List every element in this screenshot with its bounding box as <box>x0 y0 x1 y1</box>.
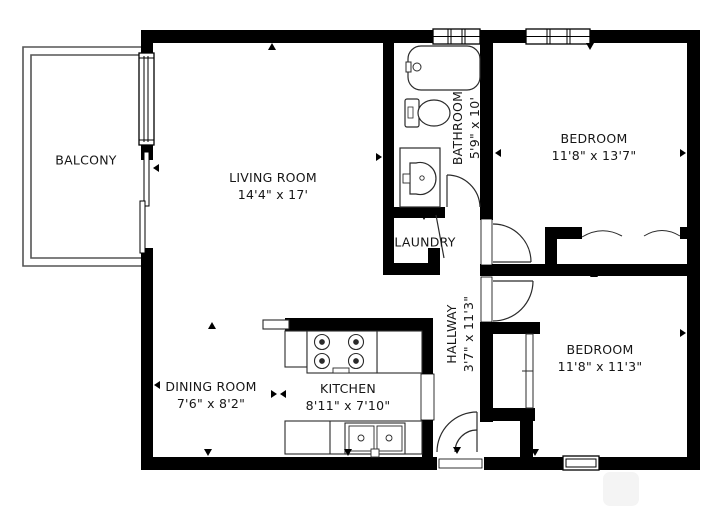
room-dimensions: 3'7" x 11'3" <box>460 296 477 372</box>
kitchen-sink <box>345 423 405 457</box>
wall-closet2-top <box>480 322 540 334</box>
room-dimensions: 11'8" x 13'7" <box>552 147 637 164</box>
bathtub <box>406 46 480 90</box>
floor-plan: BALCONY LIVING ROOM 14'4" x 17' BATHROOM… <box>0 0 720 508</box>
dimension-arrow <box>680 329 686 337</box>
wall-bottom <box>141 457 700 470</box>
window-bedroom-top <box>526 29 590 44</box>
sliding-door-balcony <box>140 152 149 253</box>
jamb-bedroom-bottom <box>481 277 492 322</box>
wall-closet1-return <box>545 227 557 269</box>
counter-right <box>377 331 422 373</box>
window-bedroom-bottom <box>563 456 599 470</box>
room-label-dining-room: DINING ROOM 7'6" x 8'2" <box>165 378 256 412</box>
dimension-arrow <box>153 164 159 172</box>
wall-laundry-return <box>428 248 440 265</box>
wall-right <box>687 30 700 470</box>
wall-hall-right-lower <box>480 322 493 422</box>
room-label-kitchen: KITCHEN 8'11" x 7'10" <box>306 380 391 414</box>
room-name: BEDROOM <box>558 341 643 358</box>
door-bathroom <box>447 175 480 207</box>
room-name: BATHROOM <box>449 91 466 165</box>
door-bedroom-bottom <box>493 281 533 321</box>
window-balcony-left <box>139 53 154 145</box>
dimension-arrow <box>495 149 501 157</box>
dimension-arrow <box>268 43 276 50</box>
bathroom-sink <box>400 148 440 207</box>
dimension-arrow <box>376 153 382 161</box>
room-name: HALLWAY <box>443 296 460 372</box>
sliding-door-closet2 <box>522 334 533 408</box>
wall-closet1-stub <box>680 227 692 239</box>
dimension-arrow <box>154 381 160 389</box>
wall-bedroom-divider <box>480 264 700 276</box>
room-label-bathroom: BATHROOM 5'9" x 10' <box>449 91 483 165</box>
dimension-arrow <box>204 449 212 456</box>
entry-sill <box>439 459 482 468</box>
stove <box>307 331 377 373</box>
room-name: DINING ROOM <box>165 378 256 395</box>
room-dimensions: 5'9" x 10' <box>466 91 483 165</box>
dimension-arrow <box>453 447 461 454</box>
room-dimensions: 11'8" x 11'3" <box>558 358 643 375</box>
window-bathroom-top <box>433 29 480 44</box>
room-label-laundry: LAUNDRY <box>394 234 455 251</box>
dimension-arrow <box>208 322 216 329</box>
watermark <box>603 472 639 506</box>
room-name: LAUNDRY <box>394 234 455 251</box>
room-label-bedroom-bottom: BEDROOM 11'8" x 11'3" <box>558 341 643 375</box>
dimension-arrow <box>280 390 286 398</box>
wall-left-lower <box>141 248 153 457</box>
toilet <box>405 99 450 127</box>
room-dimensions: 14'4" x 17' <box>229 186 317 203</box>
jamb-kitchen-pass <box>421 374 434 420</box>
door-bedroom-top <box>493 224 531 262</box>
door-entry <box>437 412 477 452</box>
room-name: LIVING ROOM <box>229 169 317 186</box>
counter-overhang <box>263 320 289 329</box>
dimension-arrow <box>586 43 594 50</box>
dimension-arrow <box>271 390 277 398</box>
room-name: BEDROOM <box>552 130 637 147</box>
room-name: BALCONY <box>55 152 116 169</box>
counter-left <box>285 331 307 367</box>
wall-closet2-bottom <box>491 408 535 421</box>
room-label-bedroom-top: BEDROOM 11'8" x 13'7" <box>552 130 637 164</box>
room-name: KITCHEN <box>306 380 391 397</box>
room-dimensions: 8'11" x 7'10" <box>306 397 391 414</box>
room-label-living-room: LIVING ROOM 14'4" x 17' <box>229 169 317 203</box>
wall-kitchen-top <box>285 318 433 331</box>
bifold-doors-closet1 <box>582 231 680 238</box>
room-dimensions: 7'6" x 8'2" <box>165 395 256 412</box>
wall-closet2-side <box>520 421 533 461</box>
dimension-arrow <box>680 149 686 157</box>
floor-plan-drawing <box>0 0 720 508</box>
room-label-hallway: HALLWAY 3'7" x 11'3" <box>443 296 477 372</box>
wall-bathroom-left <box>383 43 394 275</box>
jamb-bedroom-top <box>481 219 492 265</box>
wall-top <box>141 30 700 43</box>
room-label-balcony: BALCONY <box>55 152 116 169</box>
